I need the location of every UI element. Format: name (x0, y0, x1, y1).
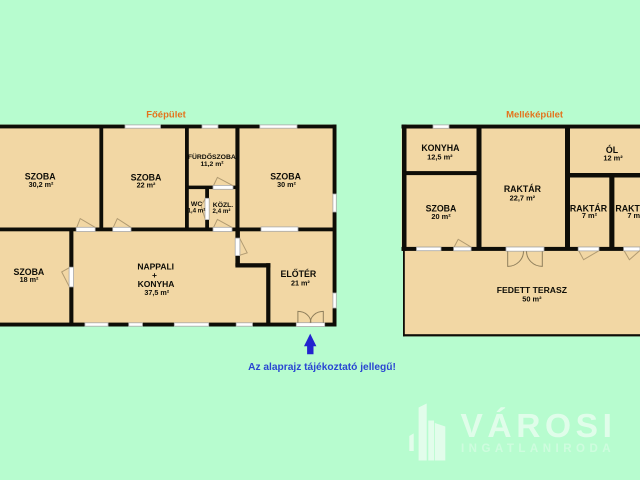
svg-text:ELŐTÉR: ELŐTÉR (281, 268, 317, 279)
svg-text:20 m²: 20 m² (431, 212, 451, 221)
svg-text:INGATLANIRODA: INGATLANIRODA (461, 443, 615, 455)
svg-text:11,2 m²: 11,2 m² (200, 161, 224, 168)
svg-text:37,5 m²: 37,5 m² (144, 288, 169, 297)
svg-text:30,2 m²: 30,2 m² (29, 180, 54, 189)
svg-text:Melléképület: Melléképület (506, 109, 564, 120)
svg-text:21 m²: 21 m² (291, 279, 310, 288)
svg-text:30 m²: 30 m² (277, 180, 296, 189)
svg-text:RAKTÁR: RAKTÁR (504, 184, 542, 194)
svg-text:Főépület: Főépület (146, 109, 186, 120)
svg-text:FÜRDŐSZOBA: FÜRDŐSZOBA (188, 152, 236, 161)
svg-text:22,7 m²: 22,7 m² (510, 194, 536, 203)
svg-text:Az alaprajz tájékoztató jelleg: Az alaprajz tájékoztató jellegű! (248, 362, 396, 373)
svg-text:50 m²: 50 m² (522, 294, 542, 303)
svg-text:VÁROSI: VÁROSI (460, 407, 616, 445)
svg-text:12,5 m²: 12,5 m² (427, 152, 453, 161)
svg-text:18 m²: 18 m² (20, 275, 39, 284)
svg-text:1,4 m²: 1,4 m² (187, 208, 205, 215)
svg-text:12 m²: 12 m² (603, 154, 623, 163)
svg-text:7 m²: 7 m² (582, 211, 598, 220)
svg-text:7 m²: 7 m² (627, 211, 640, 220)
svg-text:22 m²: 22 m² (137, 180, 156, 189)
svg-text:2,4 m²: 2,4 m² (213, 208, 231, 215)
